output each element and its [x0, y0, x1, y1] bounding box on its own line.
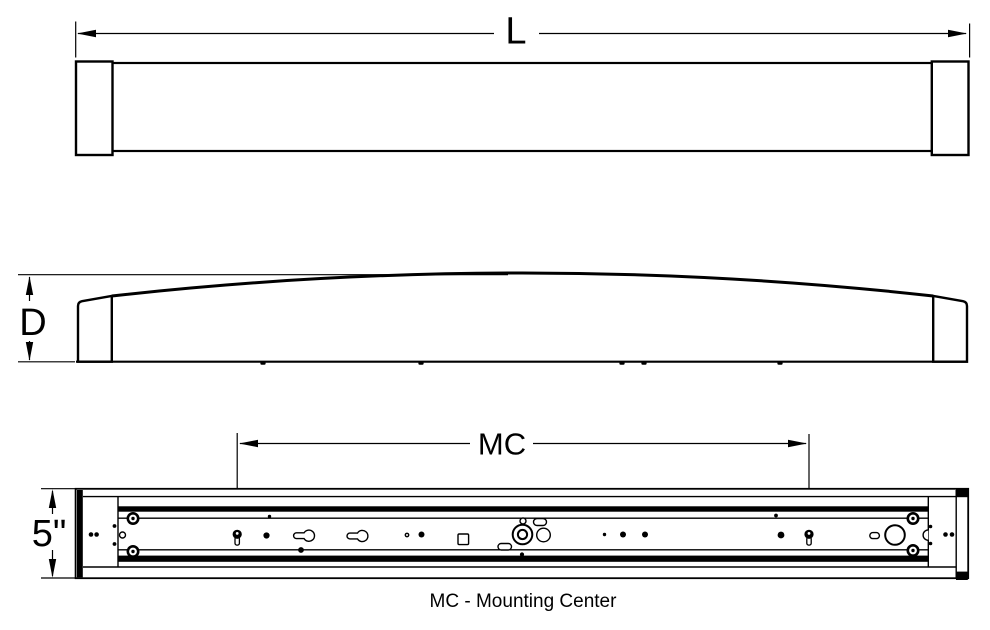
rail-bottom: [118, 556, 928, 562]
arrow-left-icon: [77, 30, 96, 37]
luminaire-dimension-drawing: L D MC: [0, 0, 990, 630]
rail-top: [118, 506, 928, 511]
dimension-height: 5": [32, 489, 79, 578]
dimension-depth: D: [18, 275, 508, 362]
end-corner-bottom-right: [956, 572, 968, 580]
arrow-left-icon: [239, 440, 258, 447]
end-plate-left: [77, 490, 83, 577]
depth-extension-lines: [18, 275, 508, 362]
depth-dimension-label: D: [19, 302, 46, 344]
wiring-knockout-hole: [885, 525, 905, 545]
arrow-up-icon: [49, 489, 56, 508]
slot-hole: [498, 544, 512, 551]
slot-hole: [534, 519, 547, 526]
height-dimension-label: 5": [32, 513, 67, 555]
fixture-body-plan: [77, 63, 968, 151]
length-dimension-label: L: [505, 11, 526, 53]
arrow-up-icon: [26, 276, 33, 295]
end-cap-left-profile: [78, 296, 112, 362]
plan-view: L: [76, 11, 970, 156]
curved-lens-profile: [112, 273, 933, 296]
arrow-right-icon: [948, 30, 967, 37]
end-corner-top-right: [956, 489, 968, 497]
slot-hole: [870, 533, 880, 539]
end-cap-right-profile: [933, 296, 967, 362]
arrow-down-icon: [26, 342, 33, 361]
end-cap-right-plan: [932, 62, 969, 156]
edge-notch: [923, 530, 928, 540]
bottom-mounting-view: MC 5": [32, 427, 969, 613]
end-cap-left-plan: [76, 62, 113, 156]
arrow-right-icon: [788, 440, 807, 447]
dimension-length: L: [76, 11, 970, 58]
arrow-down-icon: [49, 559, 56, 578]
center-knockout: [513, 525, 533, 545]
caption-text: MC - Mounting Center: [430, 591, 618, 612]
mounting-center-dimension-label: MC: [478, 427, 526, 462]
square-knockout: [458, 534, 469, 545]
side-profile-view: D: [18, 273, 968, 365]
